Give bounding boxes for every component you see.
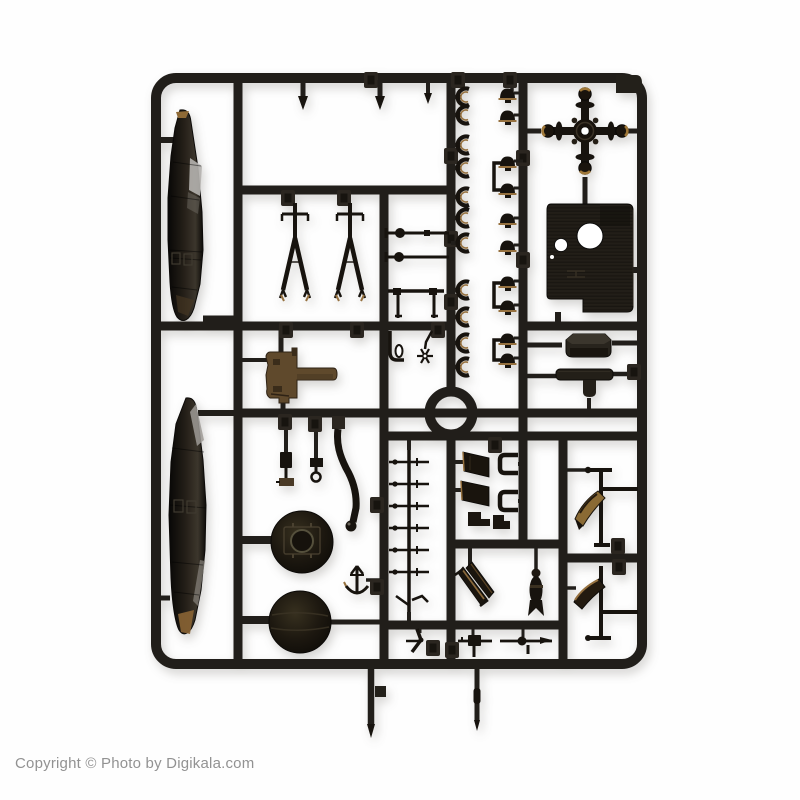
- gear-assembly-part-2: [574, 559, 638, 641]
- panel-small-hole: [555, 239, 568, 252]
- float-fuselage-part-2: [169, 398, 206, 634]
- windshield-wedge-part-1: [463, 452, 489, 477]
- wing-strut-pair-part: [455, 562, 494, 606]
- landing-gear-strut-part-1: [280, 203, 310, 301]
- step-part-2: [493, 515, 510, 529]
- u-bracket-part-2: [500, 492, 518, 510]
- bomb-part: [528, 569, 544, 617]
- antenna-ladder-parts: [389, 450, 429, 612]
- corner-gate-block: [616, 75, 642, 93]
- cockpit-floor-panel-part: [547, 204, 633, 312]
- anchor-shaped-part: [344, 566, 368, 594]
- machine-gun-part-2: [500, 637, 552, 655]
- product-photo: Copyright © Photo by Digikala.com: [0, 0, 800, 800]
- gate-tabs-bottom: [426, 640, 459, 658]
- ring-fitting-part: [310, 458, 323, 482]
- propeller-part: [542, 88, 628, 174]
- propeller-hub-hole: [581, 127, 589, 135]
- star-wheel-part: [417, 331, 433, 363]
- float1-gloss-highlight: [189, 158, 202, 196]
- bracket-fitting-part: [276, 452, 294, 486]
- landing-gear-strut-part-2: [335, 203, 365, 301]
- axle-rod-part-2: [386, 252, 449, 262]
- pilot-seat-part: [566, 334, 611, 357]
- sprue-peg-part-bottom-1: [367, 662, 386, 738]
- engine-mount-part: [266, 348, 337, 403]
- sprue-peg-part-bottom-2: [474, 662, 481, 731]
- lever-part: [390, 331, 404, 360]
- wheel-spat-part-1: [271, 511, 333, 573]
- u-frame-part: [388, 288, 444, 318]
- step-part-1: [468, 512, 490, 526]
- watermark-text: Copyright © Photo by Digikala.com: [15, 755, 254, 772]
- machine-gun-part-1: [458, 635, 492, 657]
- model-kit-sprue: [0, 0, 800, 800]
- windshield-wedge-part-2: [461, 481, 489, 506]
- t-bracket-part: [556, 369, 613, 397]
- u-bracket-part-1: [500, 455, 518, 473]
- float-fuselage-part-1: [168, 110, 203, 321]
- wheel-spat-part-2: [269, 591, 331, 653]
- gear-assembly-part-1: [575, 467, 638, 554]
- axle-rod-part-1: [386, 228, 449, 238]
- panel-large-hole: [577, 223, 603, 249]
- curved-gear-leg-part: [332, 416, 357, 532]
